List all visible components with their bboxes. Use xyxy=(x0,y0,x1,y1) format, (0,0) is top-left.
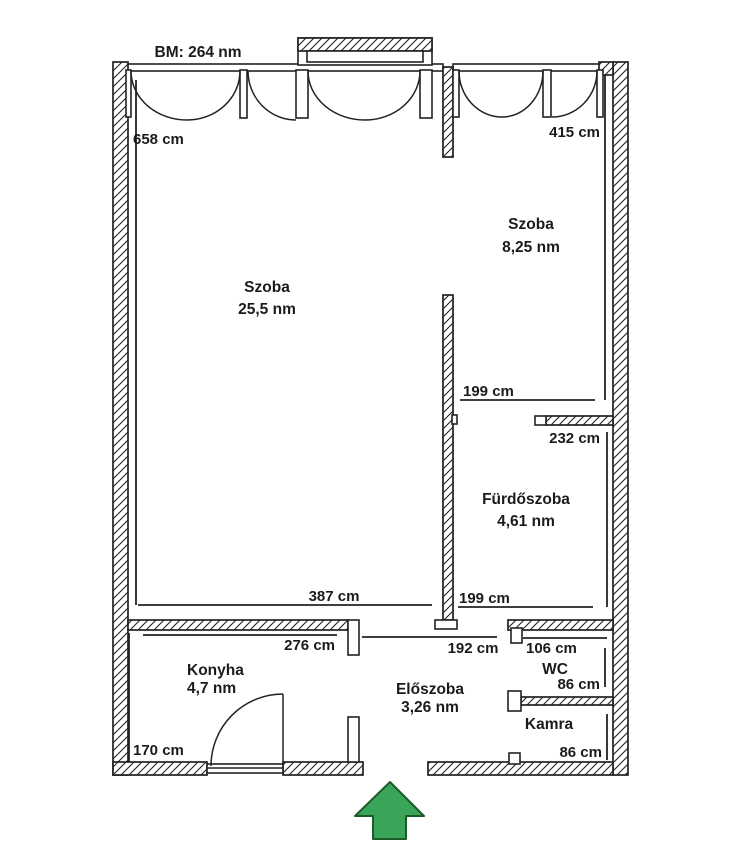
room-label-bedroom-name: Szoba xyxy=(508,216,554,233)
room-label-hallway-area: 3,26 nm xyxy=(401,699,459,716)
dim-kitchen-width: 276 cm xyxy=(284,637,335,654)
room-labels: Szoba 25,5 nm Szoba 8,25 nm Fürdőszoba 4… xyxy=(187,216,574,733)
dim-living-width: 387 cm xyxy=(309,588,360,605)
dim-wc-width: 106 cm xyxy=(526,640,577,657)
kitchen-door xyxy=(207,694,283,773)
dim-bathroom-top-width: 199 cm xyxy=(463,383,514,400)
bedroom-windows xyxy=(453,70,603,117)
dim-pantry-height: 86 cm xyxy=(559,744,602,761)
floor-plan: BM: 264 nm 658 cm 415 cm 199 cm 232 cm 3… xyxy=(0,0,730,854)
room-label-living-name: Szoba xyxy=(244,279,290,296)
interior-walls xyxy=(128,67,613,705)
room-label-pantry-name: Kamra xyxy=(525,716,574,733)
room-label-kitchen-name: Konyha xyxy=(187,662,244,679)
entrance-arrow-icon xyxy=(355,782,424,839)
dim-bathroom-height: 232 cm xyxy=(549,430,600,447)
room-label-hallway-name: Előszoba xyxy=(396,681,464,698)
header-note: BM: 264 nm xyxy=(155,44,242,61)
room-label-bathroom-area: 4,61 nm xyxy=(497,513,555,530)
dim-bathroom-bottom-width: 199 cm xyxy=(459,590,510,607)
room-label-bathroom-name: Fürdőszoba xyxy=(482,491,570,508)
dim-bedroom-height: 415 cm xyxy=(549,124,600,141)
living-room-windows xyxy=(126,70,432,120)
dim-hallway-width: 192 cm xyxy=(448,640,499,657)
room-label-kitchen-area: 4,7 nm xyxy=(187,680,236,697)
dim-wc-height: 86 cm xyxy=(557,676,600,693)
dim-living-height: 658 cm xyxy=(133,131,184,148)
room-label-living-area: 25,5 nm xyxy=(238,301,296,318)
room-label-wc-name: WC xyxy=(542,661,568,678)
dim-kitchen-height: 170 cm xyxy=(133,742,184,759)
room-label-bedroom-area: 8,25 nm xyxy=(502,239,560,256)
balcony-bay xyxy=(298,38,432,65)
